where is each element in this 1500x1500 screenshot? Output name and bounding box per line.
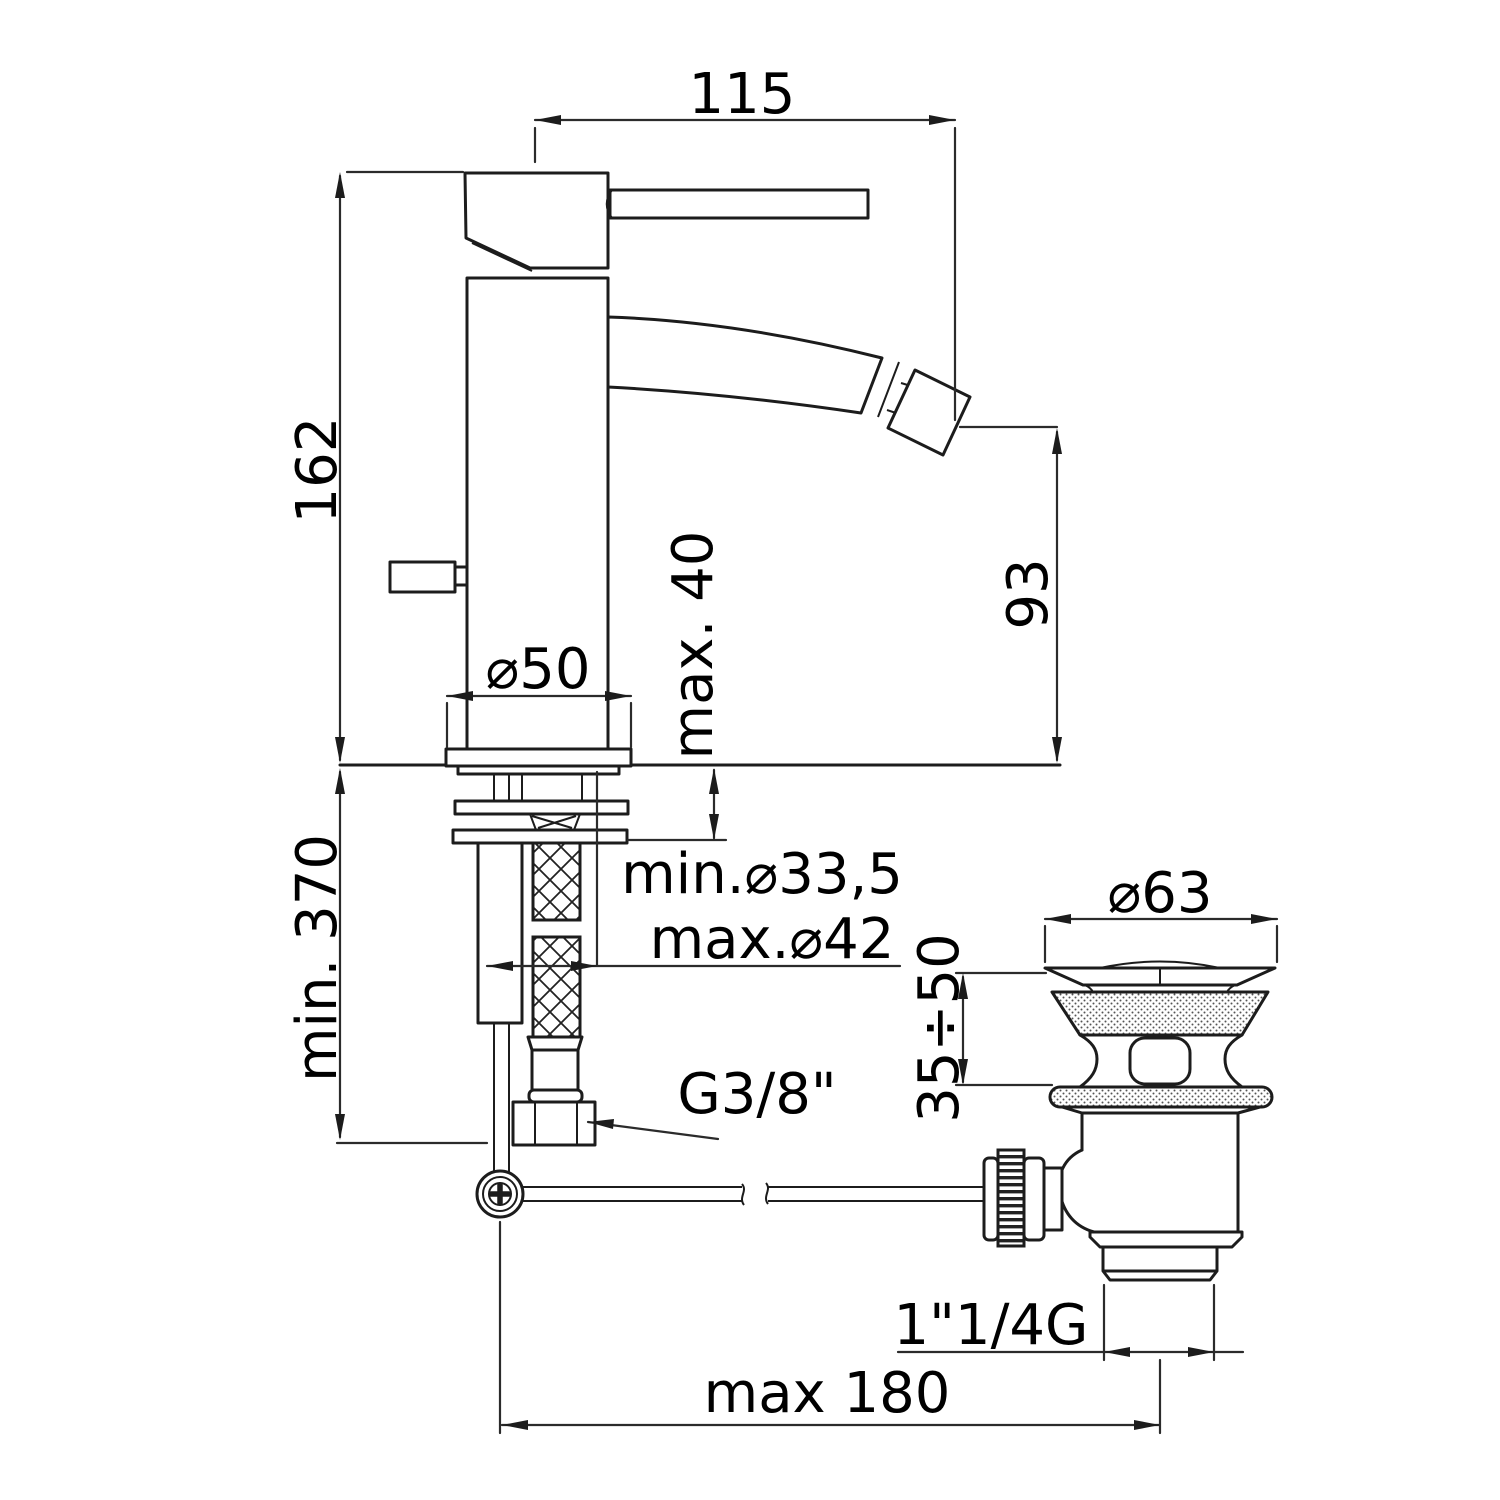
waste-knob-collar-left bbox=[984, 1158, 998, 1240]
arrowhead bbox=[709, 768, 719, 794]
arrowhead bbox=[1251, 914, 1277, 924]
rod-break-symbol bbox=[742, 1183, 768, 1205]
popup-knob-neck bbox=[455, 567, 467, 585]
waste-outlet-thread bbox=[1103, 1247, 1217, 1280]
faucet-head bbox=[465, 173, 608, 268]
base-flange-step bbox=[458, 766, 619, 774]
faucet-handle-lever bbox=[610, 190, 868, 218]
lock-washer-2 bbox=[453, 830, 627, 843]
technical-drawing: 115 162 min. 370 93 max. 40 ⌀50 bbox=[0, 0, 1500, 1500]
arrowhead bbox=[447, 691, 473, 701]
arrowhead bbox=[535, 115, 561, 125]
dim-clearance-below-label: min. 370 bbox=[285, 834, 350, 1082]
dim-supply-thread-label: G3/8" bbox=[677, 1062, 836, 1127]
dim-waste-thread: 1"1/4G bbox=[894, 1285, 1243, 1360]
waste-gasket-top bbox=[1052, 992, 1268, 1035]
waste-gasket-bottom bbox=[1050, 1087, 1272, 1107]
arrowhead bbox=[335, 1114, 345, 1140]
phillips-screw-icon bbox=[491, 1185, 509, 1203]
arrowhead bbox=[605, 691, 631, 701]
dim-waste-flange-label: ⌀63 bbox=[1108, 861, 1213, 926]
dim-rod-reach-label: max 180 bbox=[704, 1361, 951, 1426]
arrowhead bbox=[335, 737, 345, 763]
drawing-canvas: 115 162 min. 370 93 max. 40 ⌀50 bbox=[0, 0, 1500, 1500]
lock-washer-1 bbox=[455, 801, 628, 814]
waste-overflow-hole bbox=[1130, 1038, 1190, 1084]
dim-spout-height: 93 bbox=[996, 428, 1062, 763]
dim-waste-clamp: 35÷50 bbox=[907, 933, 1052, 1122]
dim-base-diameter: ⌀50 bbox=[447, 637, 631, 747]
hose-end-barrel bbox=[532, 1050, 578, 1090]
popup-knob bbox=[390, 562, 455, 592]
arrowhead bbox=[929, 115, 955, 125]
dim-waste-flange: ⌀63 bbox=[1045, 861, 1277, 962]
dim-hole-max-label: max.⌀42 bbox=[650, 907, 895, 972]
dim-supply-thread: G3/8" bbox=[588, 1062, 837, 1139]
popup-rod-vertical bbox=[494, 1023, 509, 1172]
hose-collar-trapezoid bbox=[530, 814, 580, 830]
waste-shoulders bbox=[1062, 1107, 1260, 1232]
dim-hole-min-label: min.⌀33,5 bbox=[621, 842, 903, 907]
arrowhead bbox=[1045, 914, 1071, 924]
dimension-line bbox=[447, 696, 631, 747]
dim-body-height-label: 162 bbox=[285, 417, 350, 524]
arrowhead bbox=[709, 814, 719, 840]
dim-spout-height-label: 93 bbox=[996, 558, 1061, 629]
waste-knob-neck bbox=[1044, 1168, 1062, 1230]
waste-body-spool bbox=[1080, 1035, 1242, 1087]
dim-waste-clamp-label: 35÷50 bbox=[907, 933, 972, 1122]
arrowhead bbox=[335, 768, 345, 794]
hose-nut-g38 bbox=[513, 1102, 595, 1145]
arrowhead bbox=[1188, 1347, 1214, 1357]
waste-valve-elbow bbox=[1059, 1150, 1094, 1232]
dim-waste-thread-label: 1"1/4G bbox=[894, 1293, 1089, 1358]
dim-deck-thickness-label: max. 40 bbox=[661, 531, 726, 760]
dim-body-height: 162 bbox=[285, 172, 463, 763]
arrowhead bbox=[502, 1420, 528, 1430]
arrowhead bbox=[1052, 428, 1062, 454]
shank-tube-body bbox=[478, 843, 522, 1023]
braided-hose-lower bbox=[533, 937, 580, 1037]
under-deck-assembly bbox=[453, 774, 628, 1145]
dim-deck-thickness: max. 40 bbox=[628, 531, 726, 840]
shank-tubes bbox=[494, 774, 582, 801]
dimension-line bbox=[337, 772, 487, 1143]
dim-clearance-below: min. 370 bbox=[285, 768, 487, 1143]
hose-end-fitting bbox=[528, 1037, 582, 1050]
waste-bottom-flange bbox=[1090, 1232, 1242, 1247]
popup-rod-horizontal-left bbox=[523, 1187, 742, 1201]
arrowhead bbox=[1134, 1420, 1160, 1430]
dimension-line bbox=[340, 172, 463, 760]
braided-hose-upper bbox=[533, 843, 580, 920]
popup-rod-horizontal-right bbox=[768, 1187, 984, 1201]
arrowhead bbox=[335, 172, 345, 198]
dim-base-diameter-label: ⌀50 bbox=[486, 637, 591, 702]
dimension-line bbox=[628, 770, 726, 840]
hose-end-collar bbox=[529, 1090, 582, 1102]
waste-knob-collar-right bbox=[1024, 1158, 1044, 1240]
base-flange bbox=[446, 749, 631, 766]
waste-knurled-knob bbox=[998, 1150, 1024, 1246]
arrowhead bbox=[1052, 737, 1062, 763]
spout-aerator-tip bbox=[888, 370, 970, 455]
arrowhead bbox=[1104, 1347, 1130, 1357]
arrowhead bbox=[571, 961, 597, 971]
popup-waste-assembly bbox=[984, 962, 1275, 1281]
dim-handle-reach-label: 115 bbox=[689, 62, 796, 127]
spout bbox=[608, 317, 882, 413]
